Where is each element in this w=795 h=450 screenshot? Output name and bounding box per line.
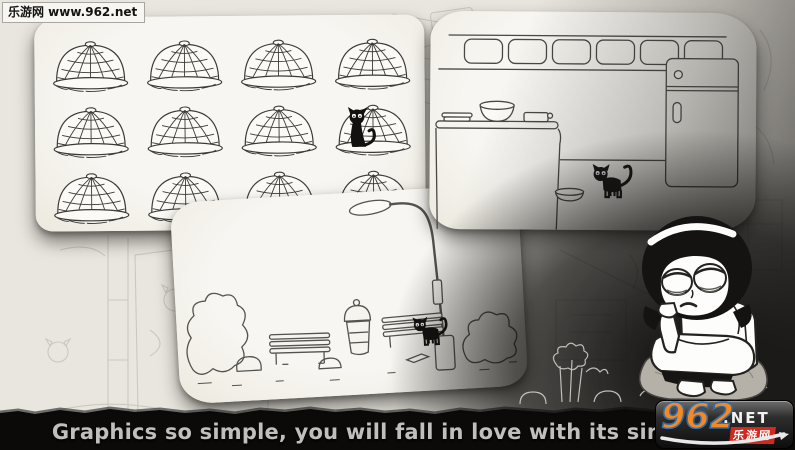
sad-girl-character	[615, 212, 785, 408]
962net-logo: 962 .NET 乐游网	[655, 400, 794, 449]
game-screenshot-collage: Graphics so simple, you will fall in lov…	[0, 0, 795, 450]
logo-swoosh-arc	[656, 430, 793, 448]
girl-head	[642, 216, 752, 330]
screenshot-panel-kitchen	[429, 11, 757, 231]
site-watermark: 乐游网 www.962.net	[2, 2, 145, 23]
black-cat-kitchen	[592, 164, 631, 197]
logo-net-text: .NET	[723, 409, 770, 427]
